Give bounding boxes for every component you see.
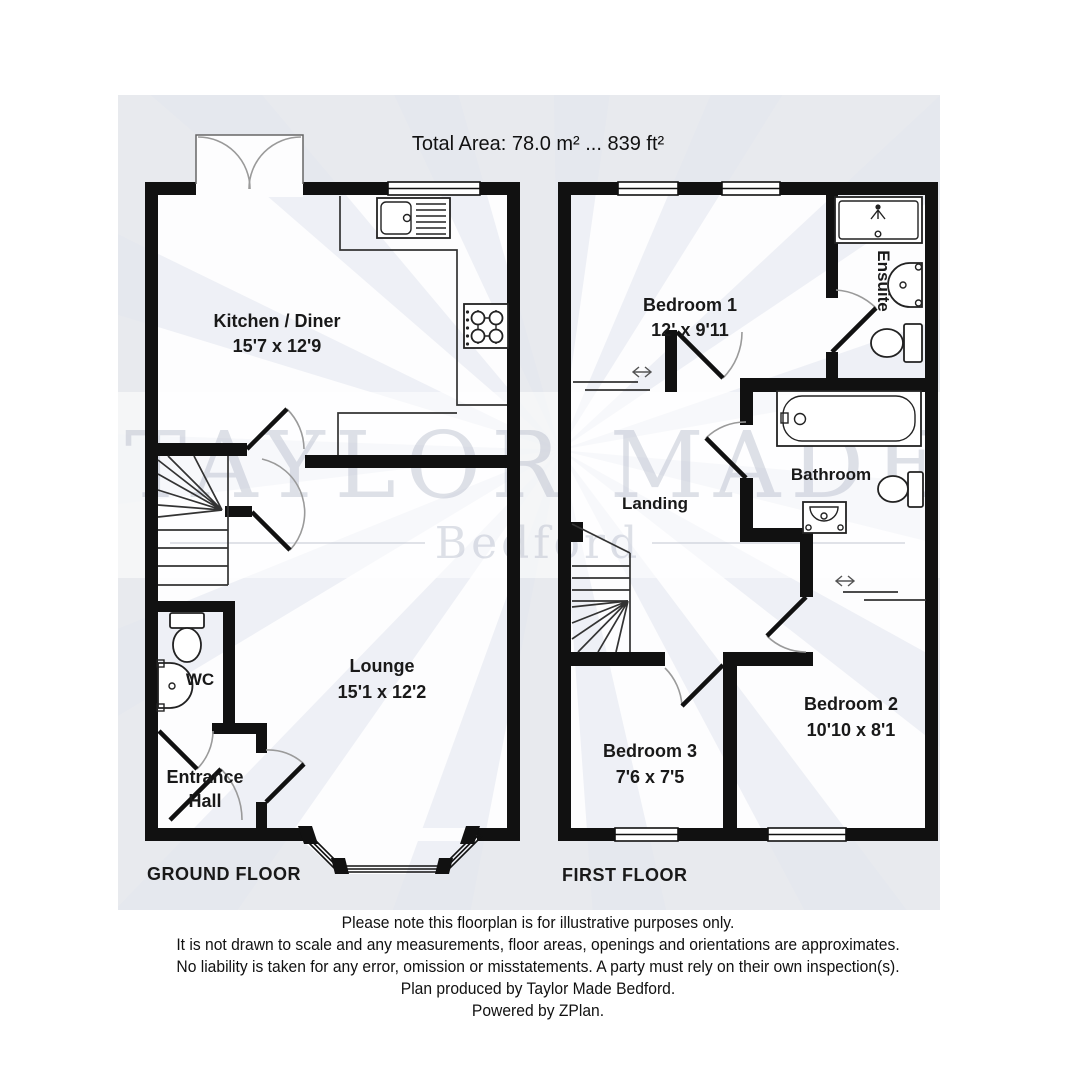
bedroom1-label: Bedroom 1 <box>643 295 737 315</box>
ensuite-label: Ensuite <box>874 250 893 311</box>
shower-tray-icon <box>835 197 922 243</box>
lounge-dims: 15'1 x 12'2 <box>338 682 427 702</box>
kitchen-dims: 15'7 x 12'9 <box>233 336 322 356</box>
french-doors-icon <box>196 135 303 197</box>
four-burner-hob-icon <box>464 304 508 348</box>
bedroom3-dims: 7'6 x 7'5 <box>616 767 685 787</box>
disclaimer-line: It is not drawn to scale and any measure… <box>43 934 1033 956</box>
wash-basin-icon <box>803 502 846 533</box>
bedroom2-dims: 10'10 x 8'1 <box>807 720 896 740</box>
wc-label: WC <box>186 670 214 689</box>
disclaimer-line: Please note this floorplan is for illust… <box>43 912 1033 934</box>
toilet-icon <box>170 613 204 662</box>
powered-by-line: Powered by ZPlan. <box>43 1000 1033 1022</box>
entrance-hall-label-2: Hall <box>188 791 221 811</box>
disclaimer-line: No liability is taken for any error, omi… <box>43 956 1033 978</box>
disclaimer-footer: Please note this floorplan is for illust… <box>0 912 1076 1022</box>
ground-floor-caption: GROUND FLOOR <box>147 864 301 884</box>
producer-line: Plan produced by Taylor Made Bedford. <box>43 978 1033 1000</box>
bedroom2-label: Bedroom 2 <box>804 694 898 714</box>
bedroom1-dims: 12' x 9'11 <box>651 320 729 340</box>
floorplan-page: TAYLOR MADE Bedford <box>0 0 1076 1080</box>
kitchen-sink-icon <box>377 198 450 238</box>
bedroom3-label: Bedroom 3 <box>603 741 697 761</box>
total-area-title: Total Area: 78.0 m² ... 839 ft² <box>412 133 665 155</box>
bathtub-icon <box>777 391 921 446</box>
first-floor-caption: FIRST FLOOR <box>562 865 688 885</box>
bathroom-label: Bathroom <box>791 465 871 484</box>
kitchen-label: Kitchen / Diner <box>213 311 340 331</box>
entrance-hall-label-1: Entrance <box>166 767 243 787</box>
window-icon <box>388 182 480 195</box>
landing-label: Landing <box>622 494 688 513</box>
lounge-label: Lounge <box>350 656 415 676</box>
